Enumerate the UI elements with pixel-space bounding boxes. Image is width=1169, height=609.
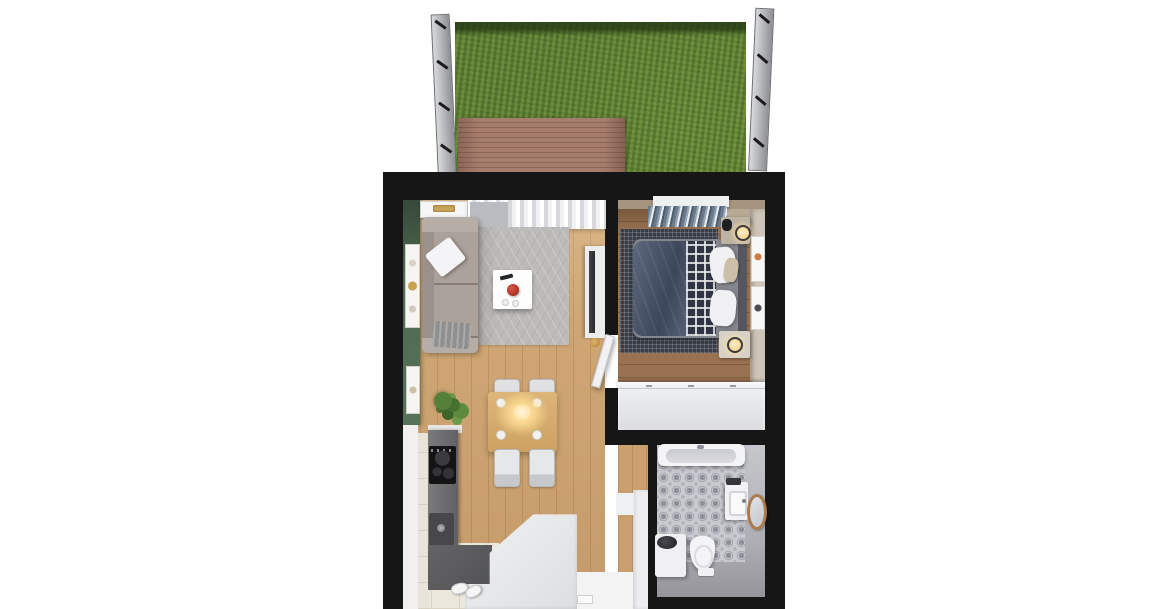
sofa-blanket <box>432 321 472 350</box>
door-threshold <box>577 595 593 604</box>
table-lamp <box>735 225 751 241</box>
dining-chair <box>529 449 555 487</box>
red-bowl <box>507 284 519 296</box>
faucet-icon <box>697 445 704 449</box>
wardrobe <box>618 382 765 430</box>
tv-console <box>585 246 605 338</box>
fence-bracket-icon <box>438 102 450 112</box>
kitchen-sink <box>429 513 454 547</box>
fence-right <box>748 8 774 172</box>
dining-table <box>488 392 557 452</box>
bed-pillow <box>708 289 737 327</box>
fence-bracket-icon <box>757 53 769 64</box>
wardrobe-seam <box>618 388 765 389</box>
sofa-armrest <box>422 217 478 232</box>
wood-deck <box>458 118 625 174</box>
ceiling-lamp-detail <box>433 205 455 212</box>
hall-wall-face <box>633 490 648 609</box>
navy-duvet <box>633 241 690 336</box>
outer-wall-left <box>383 172 403 609</box>
wall-art-frame <box>751 286 765 330</box>
faucet-icon <box>742 499 746 503</box>
potted-plant <box>434 392 452 410</box>
bathroom-wall-left <box>648 445 657 609</box>
wardrobe-handle <box>730 385 736 387</box>
pendant-light <box>513 404 531 420</box>
toiletries <box>726 478 741 485</box>
outer-wall-right <box>765 172 785 609</box>
plate <box>532 398 542 408</box>
door-frame <box>616 493 634 515</box>
partition-wall-living-bedroom-lower <box>605 388 618 445</box>
round-wood-mirror <box>747 494 767 530</box>
washing-machine <box>655 534 686 577</box>
wardrobe-handle <box>688 385 694 387</box>
fence-bracket-icon <box>436 60 448 70</box>
remote-control <box>500 273 514 280</box>
bath-mat <box>698 568 714 576</box>
cup <box>512 300 519 307</box>
window-blinds <box>648 206 727 227</box>
plate <box>496 430 506 440</box>
washer-lid <box>657 536 677 549</box>
sink-basin <box>729 491 747 516</box>
fence-bracket-icon <box>440 144 452 154</box>
table-lamp <box>727 337 743 353</box>
fence-bracket-icon <box>759 13 771 24</box>
ceiling-lamp <box>420 201 468 218</box>
kitchen-wall-face <box>403 425 418 609</box>
fence-bracket-icon <box>755 95 767 106</box>
plate <box>496 398 506 408</box>
wall-art-frame <box>406 366 420 414</box>
bathtub-basin <box>666 449 736 463</box>
partition-wall-bedroom-bathroom <box>618 430 765 445</box>
tv <box>589 251 595 333</box>
fence-bracket-icon <box>434 20 446 30</box>
wall-art-frame <box>751 236 765 282</box>
dining-chair <box>494 449 520 487</box>
toilet-seat <box>694 545 713 568</box>
bathtub <box>658 444 745 466</box>
wardrobe-handle <box>646 385 652 387</box>
faucet-icon <box>437 524 445 532</box>
vanity-sink <box>725 482 748 520</box>
plate <box>532 430 542 440</box>
floorplan-render <box>0 0 1169 609</box>
wall-art-frame <box>405 244 420 328</box>
deer-figurine <box>590 338 600 347</box>
partition-wall-living-bedroom <box>605 200 618 335</box>
cooktop <box>429 446 456 484</box>
coffee-table <box>493 270 532 309</box>
fence-bracket-icon <box>753 137 765 148</box>
bed-headboard <box>738 239 747 338</box>
cup <box>502 299 509 306</box>
bathroom-wall-bottom <box>648 597 785 609</box>
fence-left <box>431 14 457 179</box>
